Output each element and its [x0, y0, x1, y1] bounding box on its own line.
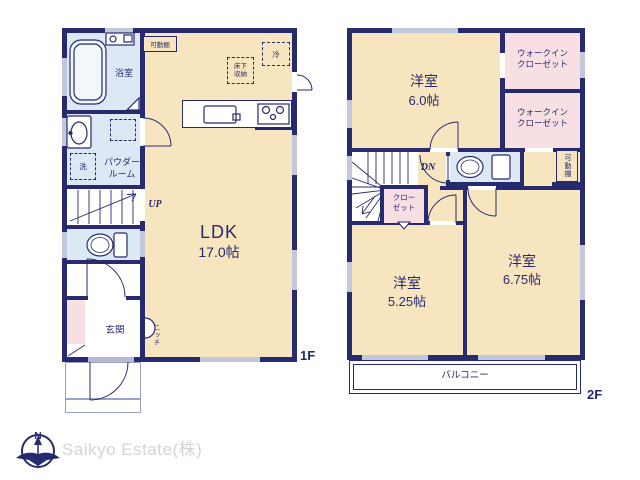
floor-plan-canvas: 可動棚 冷 床下 収納 洗 可動棚 — [0, 0, 640, 480]
stove-icon — [258, 104, 289, 124]
room-label-wic-b: ウォークイン クローゼット — [505, 107, 580, 129]
room-label-closet: クロー ゼット — [384, 193, 424, 213]
floor1-label: 1F — [300, 348, 330, 365]
stairs-1f-treads — [70, 190, 136, 224]
balcony-label: バルコニー — [415, 370, 515, 382]
room-label-entrance: 玄関 — [95, 325, 135, 337]
bathroom-sink-icon — [106, 33, 134, 45]
stairs-down-label: DN — [414, 161, 442, 174]
kitchen-sink-icon — [204, 106, 240, 123]
stairs-up-label: UP — [142, 198, 168, 211]
room-label-wic-a: ウォークイン クローゼット — [505, 48, 580, 70]
room-label-bathroom: 浴室 — [104, 68, 144, 80]
bathroom-door-fold — [127, 98, 139, 110]
room-label-bedroom-a: 洋室 — [394, 72, 454, 90]
room-size-bedroom-b: 5.25帖 — [377, 294, 437, 311]
toilet-icon-2f — [457, 155, 510, 179]
room-size-ldk: 17.0帖 — [189, 243, 249, 261]
floor2-label: 2F — [587, 387, 617, 404]
powder-sink-icon — [67, 116, 91, 148]
compass-icon: N — [16, 431, 60, 468]
room-size-bedroom-c: 6.75帖 — [492, 272, 552, 289]
fixtures-layer: N — [0, 0, 640, 480]
room-label-powder: パウダー ルーム — [92, 157, 152, 180]
room-size-bedroom-a: 6.0帖 — [394, 93, 454, 110]
bathtub-icon — [70, 40, 106, 104]
toilet-icon-1f — [87, 233, 127, 257]
niche-label: ニッチ — [147, 314, 159, 356]
room-label-bedroom-c: 洋室 — [492, 252, 552, 270]
room-label-bedroom-b: 洋室 — [377, 274, 437, 292]
company-logo-text: Saikyo Estate(株) — [62, 439, 282, 461]
entrance-corner-line — [68, 345, 85, 356]
room-label-ldk: LDK — [189, 221, 249, 244]
